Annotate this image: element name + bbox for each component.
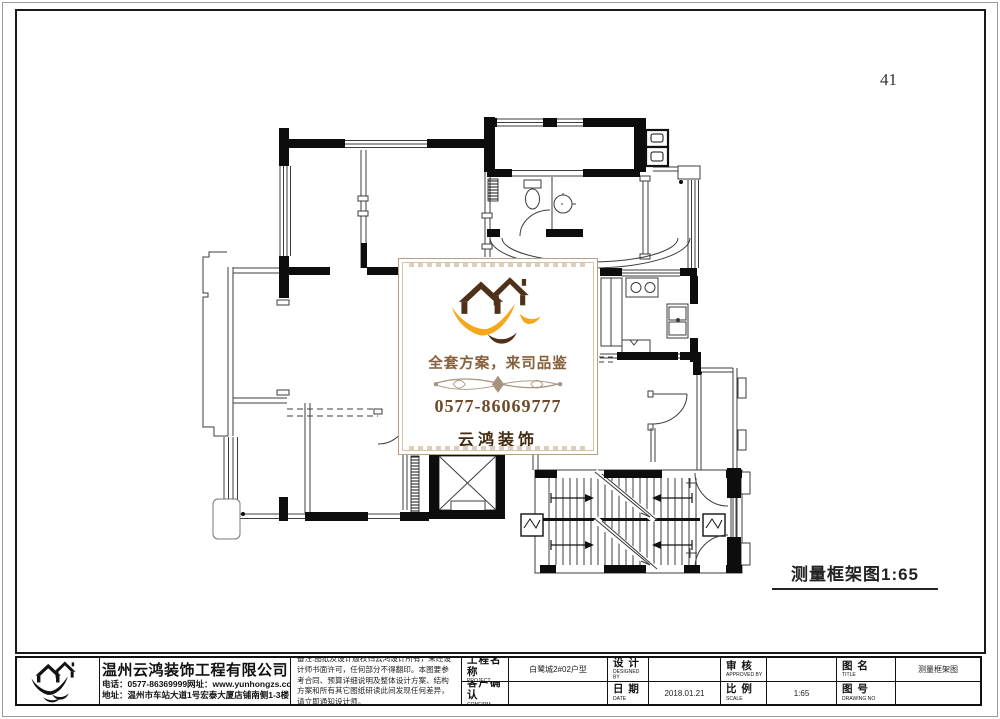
field-drawingno-label: 图 号 DRAWING NO	[836, 681, 895, 704]
company-info-cell: 温州云鸿装饰工程有限公司 电话：0577-86369999网址：www.yunh…	[99, 658, 290, 704]
corner-block	[213, 499, 240, 539]
balcony-outline	[203, 252, 228, 436]
bathroom	[520, 177, 576, 236]
company-phone-line: 电话：0577-86369999网址：www.yunhongzs.com	[102, 679, 290, 690]
drawing-sheet: 41	[0, 0, 1000, 719]
notes-cell: 备注:图纸及设计版权归云鸿设计所有，未经设计师书面许可，任何部分不得翻印。本图要…	[290, 658, 461, 704]
field-designer-label: 设 计 DESIGNED BY	[607, 658, 648, 681]
field-project-label: 工程名称 PROJECT	[461, 658, 508, 681]
page-number: 41	[880, 70, 897, 90]
staircase	[521, 470, 750, 573]
washbasin-icon	[554, 193, 576, 213]
toilet-icon	[524, 180, 541, 209]
field-project-value: 白鹭城2#02户型	[508, 658, 607, 681]
zigzag-symbol	[521, 514, 725, 536]
ornament-trim-bottom	[409, 446, 587, 450]
door-arc	[520, 210, 550, 236]
field-date-value: 2018.01.21	[648, 681, 720, 704]
field-confirm-label: 客户确认 CONFIRM	[461, 681, 508, 704]
company-name: 温州云鸿装饰工程有限公司	[102, 662, 290, 679]
field-designer-value	[648, 658, 720, 681]
company-logo-black-icon	[27, 659, 89, 703]
watermark-card: 全套方案，来司品鉴 0577-86069777 云鸿装饰	[398, 258, 598, 455]
kitchen	[590, 270, 697, 362]
field-title-value: 测量框架图	[895, 658, 980, 681]
watermark-inner: 全套方案，来司品鉴 0577-86069777 云鸿装饰	[402, 262, 594, 451]
field-title-label: 图 名 TITLE	[836, 658, 895, 681]
field-approver-value	[766, 658, 836, 681]
title-block-logo-cell	[17, 658, 99, 704]
title-block: 温州云鸿装饰工程有限公司 电话：0577-86369999网址：www.yunh…	[15, 656, 982, 706]
field-date-label: 日 期 DATE	[607, 681, 648, 704]
company-address-line: 地址：温州市车站大道1号宏泰大厦店铺南侧1-3楼	[102, 690, 290, 701]
elevator-icon	[411, 456, 496, 514]
field-scale-value: 1:65	[766, 681, 836, 704]
field-scale-label: 比 例 SCALE	[720, 681, 766, 704]
appliance-boxes	[646, 130, 668, 166]
watermark-phone: 0577-86069777	[435, 396, 562, 417]
field-confirm-value	[508, 681, 607, 704]
watermark-slogan: 全套方案，来司品鉴	[428, 352, 568, 373]
stove-icon	[626, 278, 658, 297]
notes-text: 备注:图纸及设计版权归云鸿设计所有，未经设计师书面许可，任何部分不得翻印。本图要…	[297, 658, 455, 704]
ornament-flourish-icon	[420, 373, 576, 395]
field-drawingno-value	[895, 681, 980, 704]
field-approver-label: 审 核 APPROVED BY	[720, 658, 766, 681]
kitchen-sink-icon	[667, 304, 688, 338]
drawing-scale-label: 测量框架图1:65	[772, 560, 938, 590]
ornament-trim-top	[409, 263, 587, 267]
company-logo-houses-icon	[438, 273, 558, 350]
